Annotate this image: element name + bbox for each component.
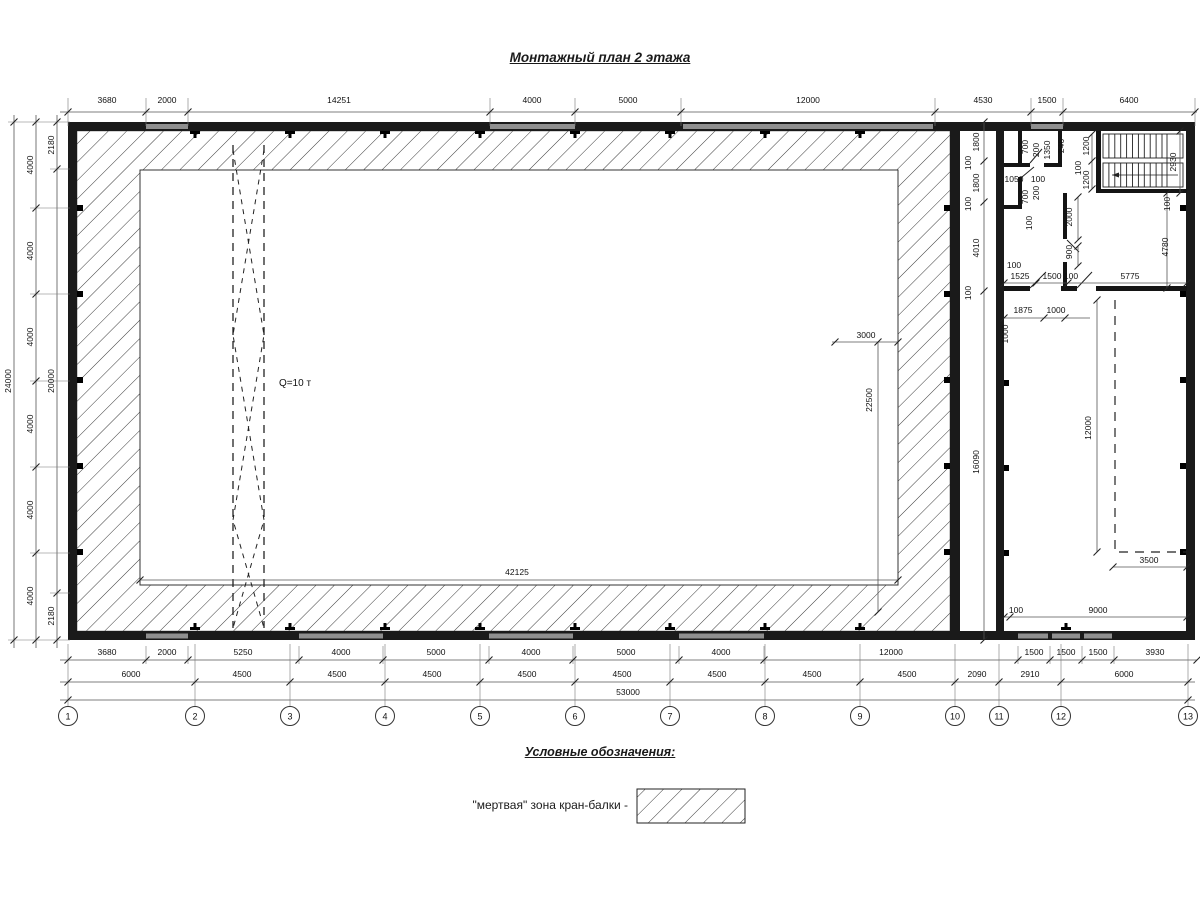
axis-bubble-label: 5 [477, 712, 482, 722]
dim-label: 20000 [46, 369, 56, 393]
dim-label: 1500 [1025, 647, 1044, 657]
dim-label: 4500 [423, 669, 442, 679]
dim-label: 100 [963, 197, 973, 211]
dim-label: 1500 [1057, 647, 1076, 657]
axis-bubble-label: 7 [667, 712, 672, 722]
dim-label: 5000 [427, 647, 446, 657]
dim-label: 4530 [974, 95, 993, 105]
dashed-zone-boundary [1115, 300, 1187, 552]
dim-label: 4500 [708, 669, 727, 679]
dim-label: 1500 [1038, 95, 1057, 105]
dim-label: 900 [1064, 245, 1074, 259]
axis-bubbles-group: 12345678910111213 [59, 707, 1198, 726]
dim-label: 4010 [971, 238, 981, 257]
crane-coverage-area [140, 170, 898, 585]
dim-label: 12000 [879, 647, 903, 657]
dim-label: 100 [963, 156, 973, 170]
dim-label: 4500 [803, 669, 822, 679]
dim-label: 4500 [898, 669, 917, 679]
dim-label: 3680 [98, 647, 117, 657]
dim-label: 4000 [25, 414, 35, 433]
dim-label: 4500 [613, 669, 632, 679]
dim-label: 4000 [25, 241, 35, 260]
dim-label: Q=10 т [279, 378, 312, 389]
dim-label: 700 [1020, 140, 1030, 154]
dim-label: 6400 [1120, 95, 1139, 105]
dim-label: 3930 [1146, 647, 1165, 657]
drawing-page: Монтажный план 2 этажа [0, 0, 1200, 900]
dim-label: 5250 [234, 647, 253, 657]
dim-label: 4000 [522, 647, 541, 657]
legend-item-label: "мертвая" зона кран-балки - [472, 798, 628, 812]
dim-label: 100 [963, 286, 973, 300]
dim-label: 4000 [25, 500, 35, 519]
axis-bubble-label: 10 [950, 712, 960, 722]
dim-label: 1500 [1043, 271, 1062, 281]
dim-label: 12000 [1083, 416, 1093, 440]
axis-bubble-label: 1 [65, 712, 70, 722]
dim-label: 100 [1064, 271, 1078, 281]
dim-label: 100 [1009, 605, 1023, 615]
dim-label: 4000 [25, 155, 35, 174]
legend-heading: Условные обозначения: [0, 745, 1200, 759]
axis-bubble-label: 4 [382, 712, 387, 722]
dim-label: 3000 [857, 330, 876, 340]
dim-label: 1500 [1089, 647, 1108, 657]
dim-label: 3500 [1140, 555, 1159, 565]
dim-label: 4000 [25, 327, 35, 346]
dim-label: 100 [1162, 197, 1172, 211]
dim-label: 5000 [619, 95, 638, 105]
dim-label: 2000 [158, 647, 177, 657]
dim-label: 4500 [518, 669, 537, 679]
legend-hatch-sample [637, 789, 745, 823]
dim-label: 1800 [971, 132, 981, 151]
dim-label: 4000 [25, 586, 35, 605]
dim-label: 2000 [1064, 207, 1074, 226]
dim-label: 1800 [971, 173, 981, 192]
dim-label: 4500 [328, 669, 347, 679]
dim-label: 1875 [1014, 305, 1033, 315]
dim-label: 3680 [98, 95, 117, 105]
dim-label: 2930 [1168, 152, 1178, 171]
dim-label: 24000 [3, 369, 13, 393]
dim-label: 700 [1020, 190, 1030, 204]
dim-label: 246 [1056, 139, 1066, 153]
dim-label: 100 [1031, 174, 1045, 184]
dim-label: 2090 [968, 669, 987, 679]
axis-bubble-label: 2 [192, 712, 197, 722]
dim-label: 2910 [1021, 669, 1040, 679]
dim-label: 200 [1031, 186, 1041, 200]
dim-label: 1525 [1011, 271, 1030, 281]
dim-label: 1050 [1005, 174, 1024, 184]
dim-label: 16090 [971, 450, 981, 474]
axis-bubble-label: 11 [994, 712, 1003, 722]
dim-label: 9000 [1089, 605, 1108, 615]
dim-label: 200 [1031, 143, 1041, 157]
axis-bubble-label: 3 [287, 712, 292, 722]
dim-label: 6000 [122, 669, 141, 679]
dim-label: 100 [1024, 216, 1034, 230]
dim-label: 4500 [233, 669, 252, 679]
dim-label: 1200 [1081, 170, 1091, 189]
axis-bubble-label: 13 [1183, 712, 1193, 722]
dim-label: 2180 [46, 135, 56, 154]
dim-label: 22500 [864, 388, 874, 412]
axis-bubble-label: 6 [572, 712, 577, 722]
dim-label: 12000 [796, 95, 820, 105]
axis-bubble-label: 9 [857, 712, 862, 722]
dim-label: 5000 [617, 647, 636, 657]
axis-bubble-label: 12 [1056, 712, 1066, 722]
dim-label: 1000 [1000, 324, 1010, 343]
axis-bubble-label: 8 [762, 712, 767, 722]
dim-label: 100 [1007, 260, 1021, 270]
dim-label: 1000 [1047, 305, 1066, 315]
dim-label: 5775 [1121, 271, 1140, 281]
dim-label: 14251 [327, 95, 351, 105]
dim-label: 4780 [1160, 237, 1170, 256]
dim-label: 1200 [1081, 136, 1091, 155]
dim-label: 2180 [46, 606, 56, 625]
dim-label: 2000 [158, 95, 177, 105]
dim-label: 53000 [616, 687, 640, 697]
floor-plan-canvas: 3680200014251400050001200045301500640024… [0, 0, 1200, 900]
dim-label: 4000 [712, 647, 731, 657]
dim-label: 4000 [523, 95, 542, 105]
dim-label: 6000 [1115, 669, 1134, 679]
dim-label: 42125 [505, 567, 529, 577]
dim-label: 4000 [332, 647, 351, 657]
dim-label: 1350 [1042, 140, 1052, 159]
